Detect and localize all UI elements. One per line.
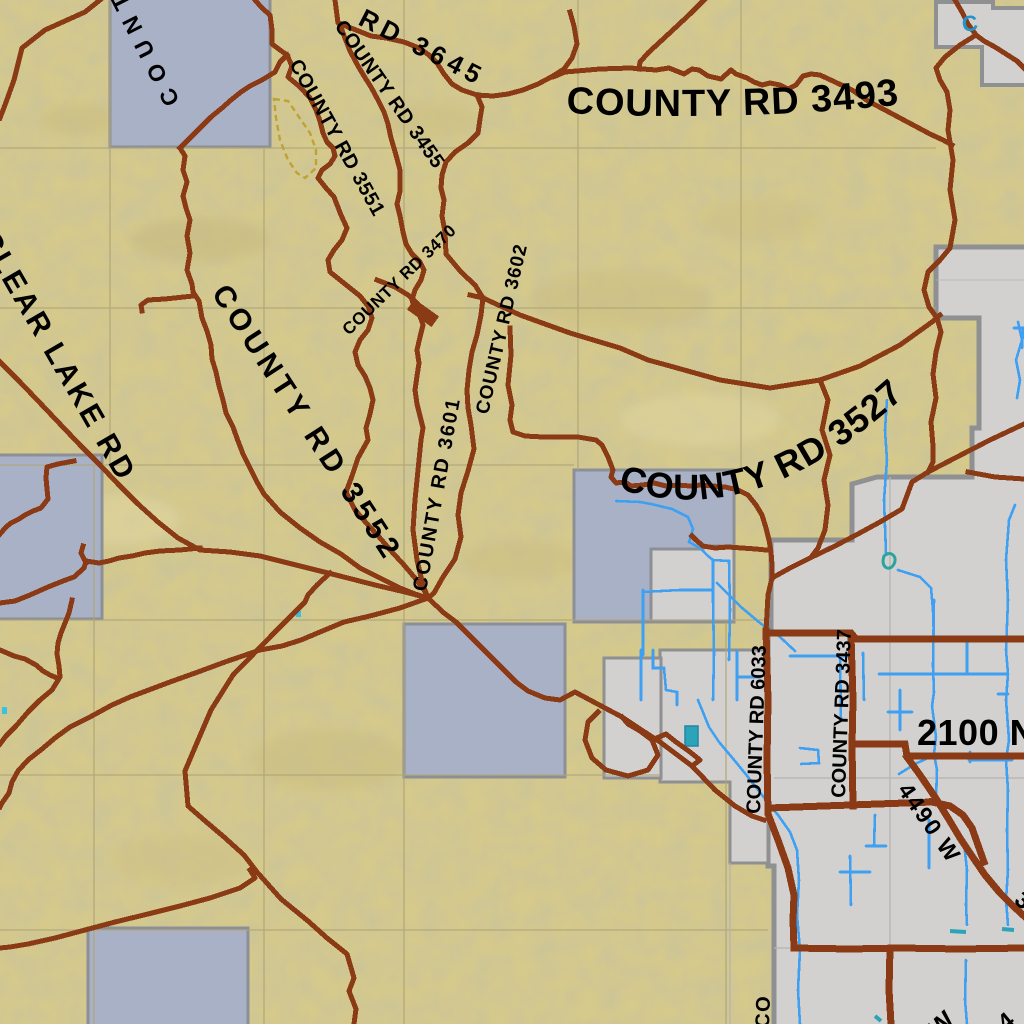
svg-text:CO: CO bbox=[752, 994, 775, 1024]
svg-text:2100 N: 2100 N bbox=[917, 712, 1024, 753]
svg-text:C: C bbox=[960, 10, 981, 37]
